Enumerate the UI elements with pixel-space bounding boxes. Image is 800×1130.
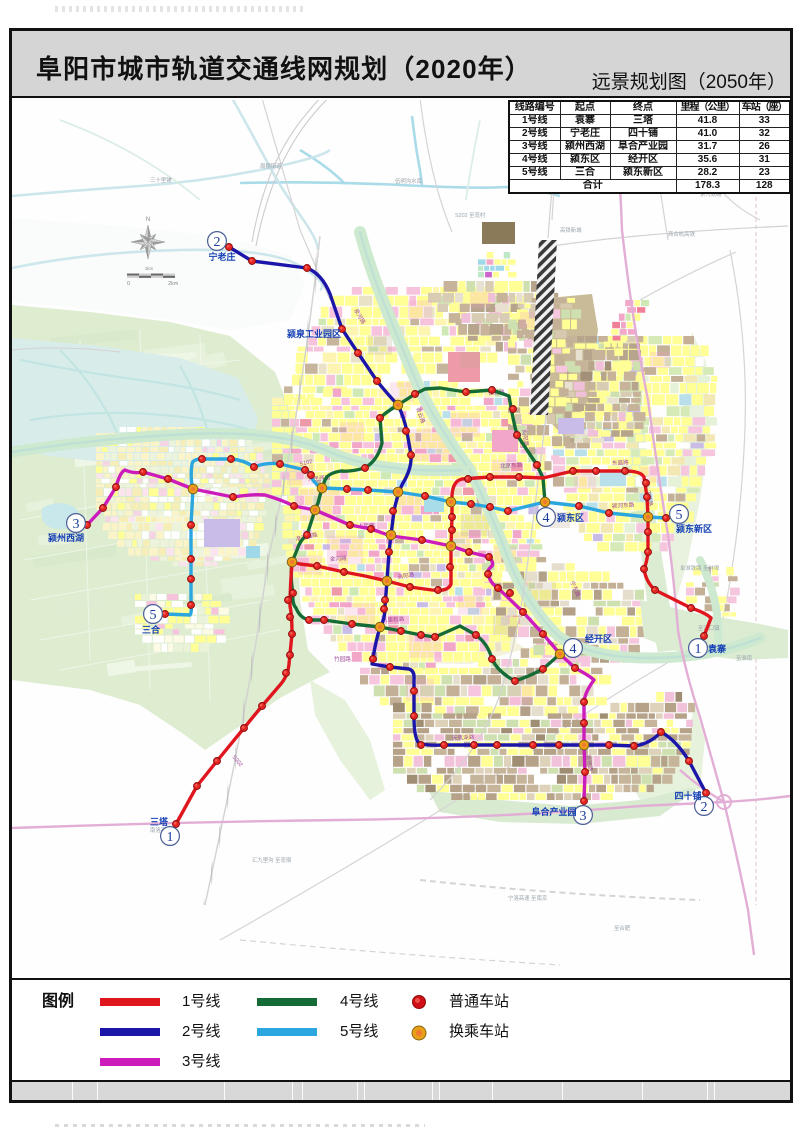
svg-text:5: 5 (150, 608, 157, 623)
svg-text:至淮南: 至淮南 (736, 654, 753, 662)
svg-text:三合: 三合 (142, 624, 161, 635)
svg-text:S202 至亳村: S202 至亳村 (455, 211, 486, 219)
svg-text:竹园路: 竹园路 (334, 655, 351, 663)
svg-text:三塔: 三塔 (150, 816, 169, 827)
svg-text:四十铺: 四十铺 (674, 790, 701, 801)
svg-text:至合肥: 至合肥 (614, 924, 631, 932)
svg-text:宁老庄: 宁老庄 (208, 251, 235, 262)
svg-text:5: 5 (676, 508, 683, 523)
svg-text:周棚街道: 周棚街道 (260, 162, 282, 170)
svg-text:伍明沟水库: 伍明沟水库 (395, 177, 423, 185)
svg-text:1: 1 (167, 830, 174, 845)
svg-text:N: N (146, 217, 150, 223)
svg-text:三十里铺: 三十里铺 (150, 176, 172, 184)
svg-text:高铁新城: 高铁新城 (560, 226, 582, 234)
svg-text:阜淮铁路 至蚌埠: 阜淮铁路 至蚌埠 (680, 564, 720, 572)
svg-text:颍泉工业园区: 颍泉工业园区 (286, 328, 341, 339)
svg-text:2: 2 (701, 800, 708, 815)
svg-text:4: 4 (570, 642, 577, 657)
svg-text:0: 0 (127, 281, 130, 287)
svg-text:商合杭高铁: 商合杭高铁 (668, 230, 696, 238)
svg-text:阜合产业园: 阜合产业园 (531, 806, 576, 817)
svg-text:宁洛高速 至南京: 宁洛高速 至南京 (508, 894, 548, 902)
svg-text:经开区: 经开区 (585, 633, 612, 644)
svg-text:1: 1 (695, 642, 702, 657)
svg-text:4: 4 (543, 511, 550, 526)
svg-text:袁寨: 袁寨 (707, 643, 727, 654)
svg-text:颍东区: 颍东区 (556, 512, 584, 523)
svg-text:3: 3 (580, 809, 587, 824)
svg-text:2km: 2km (168, 281, 179, 287)
svg-text:汇九里沟 至亳宿: 汇九里沟 至亳宿 (252, 856, 292, 864)
svg-text:颍东新区: 颍东新区 (675, 523, 712, 534)
svg-text:3: 3 (73, 517, 80, 532)
svg-text:颍州西湖: 颍州西湖 (47, 532, 84, 543)
svg-text:1km: 1km (145, 266, 154, 271)
svg-text:2: 2 (214, 235, 221, 250)
